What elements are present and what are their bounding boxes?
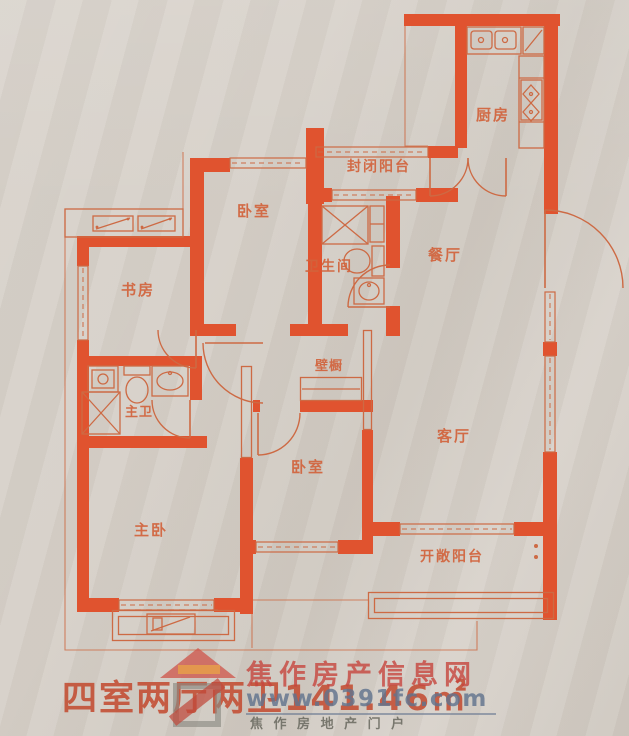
bathroom-sink xyxy=(354,278,384,304)
window-master-bedroom xyxy=(119,600,214,610)
washer xyxy=(88,366,118,392)
window-bedroom-top xyxy=(230,158,306,168)
window-dining-right xyxy=(545,292,555,342)
outline-lines xyxy=(65,26,477,650)
thin-walls xyxy=(113,331,554,641)
window-balcony-bottom xyxy=(332,190,416,200)
room-label-kitchen: 厨房 xyxy=(476,104,510,125)
balcony-drains xyxy=(534,544,538,559)
room-label-master-bedroom: 主卧 xyxy=(134,519,168,540)
master-sink xyxy=(152,366,188,396)
room-label-closet: 壁橱 xyxy=(315,355,343,374)
bay-window-label-box xyxy=(124,610,222,634)
balcony-railing xyxy=(369,593,554,619)
room-label-study: 书房 xyxy=(121,279,155,300)
kitchen-door-right xyxy=(468,158,506,196)
room-label-master-bath: 主卫 xyxy=(125,401,153,420)
floor-plan-canvas: 厨房 封闭阳台 卧室 书房 卫生间 餐厅 主卫 壁橱 客厅 卧室 主卧 开敞阳台… xyxy=(0,0,629,736)
room-label-enclosed-balcony: 封闭阳台 xyxy=(347,156,411,176)
entry-door xyxy=(545,210,623,288)
window-study xyxy=(78,266,88,340)
plan-caption: 四室两厅两卫141.46㎡ xyxy=(62,670,468,721)
bay-window xyxy=(113,611,235,641)
window-living-right xyxy=(545,356,555,452)
master-bath-door xyxy=(152,400,190,438)
room-label-bedroom-mid: 卧室 xyxy=(291,456,325,477)
bedroom-mid-door xyxy=(258,413,300,455)
ac-units xyxy=(65,209,183,237)
stove xyxy=(521,80,542,121)
room-label-living: 客厅 xyxy=(437,425,471,446)
room-label-bathroom: 卫生间 xyxy=(305,256,353,276)
window-living-balcony xyxy=(400,524,514,534)
shower xyxy=(322,206,384,244)
master-bedroom-door xyxy=(203,343,263,403)
master-toilet xyxy=(124,366,150,403)
room-label-dining: 餐厅 xyxy=(428,244,462,265)
window-bedroom-mid xyxy=(256,542,338,552)
kitchen-sink xyxy=(467,27,521,54)
room-label-bedroom-top: 卧室 xyxy=(237,200,271,221)
room-label-open-balcony: 开敞阳台 xyxy=(420,546,484,566)
kitchen-counter xyxy=(519,27,544,148)
